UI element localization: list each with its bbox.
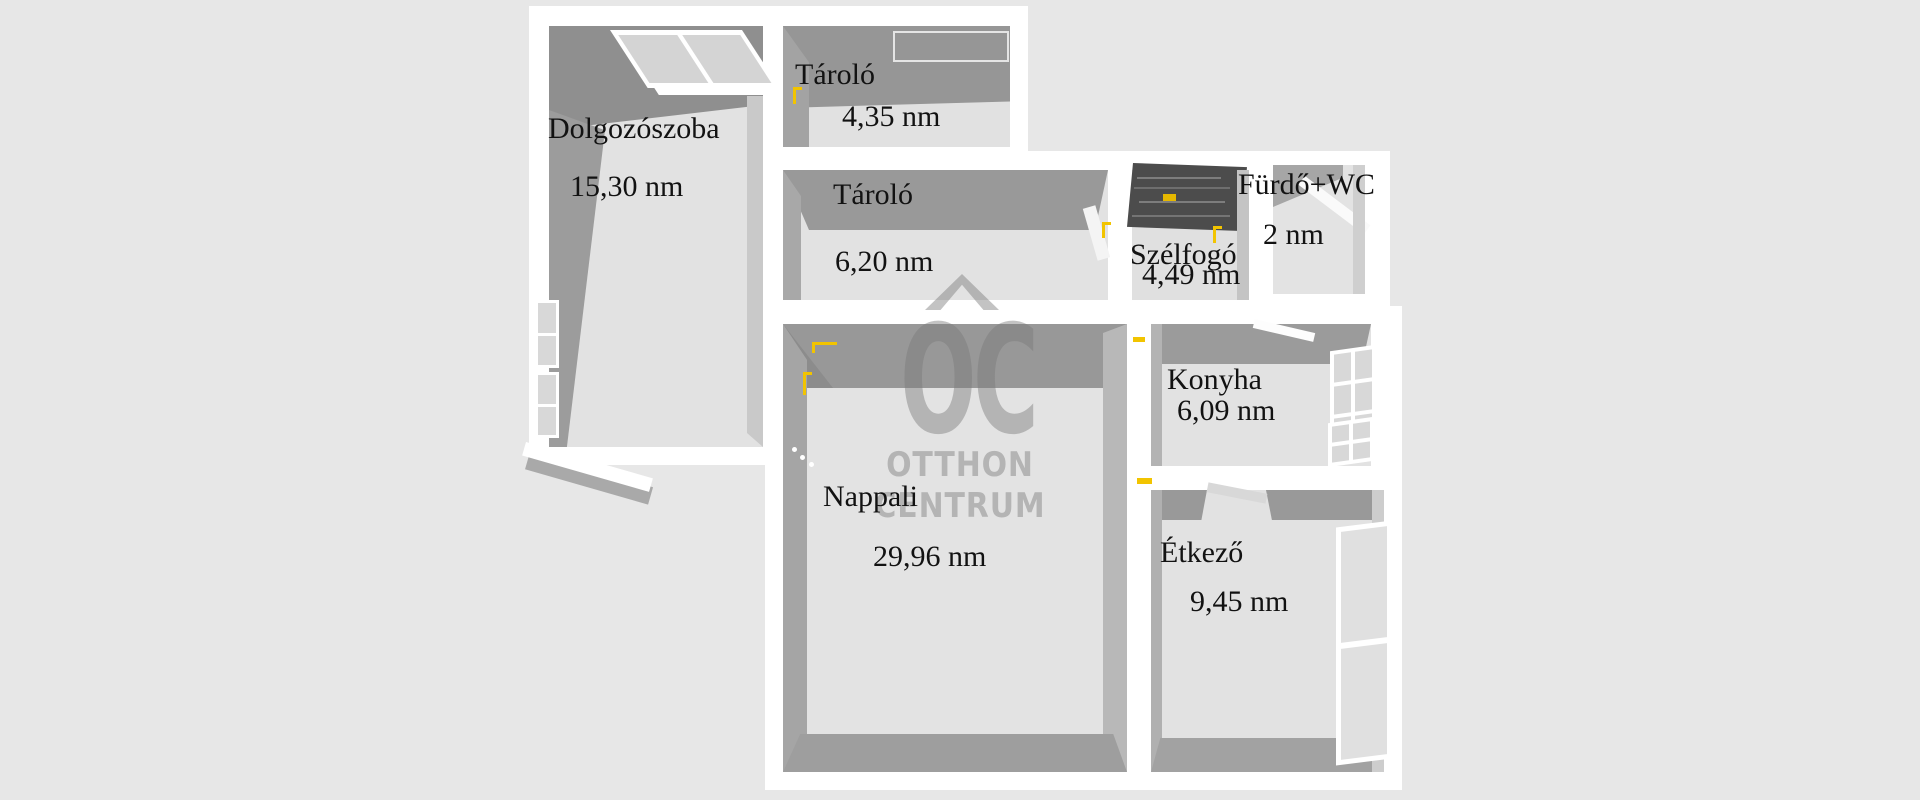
watermark-logo: OC	[900, 306, 1020, 456]
room-label-szelfogo-area: 4,49 nm	[1142, 258, 1240, 292]
door-handle-marker	[812, 342, 837, 353]
window-pane	[1353, 441, 1370, 459]
stair-step-line	[1139, 201, 1225, 203]
room-label-etkezo-area: 9,45 nm	[1190, 585, 1288, 619]
window-pane	[1353, 421, 1370, 439]
door-handle-marker	[803, 372, 812, 395]
window-pane	[1355, 381, 1372, 411]
room-label-furdo-area: 2 nm	[1263, 218, 1324, 252]
room-label-tarolo2-name: Tároló	[833, 178, 913, 212]
window-pane	[1334, 384, 1351, 414]
stair-step-line	[1134, 187, 1230, 189]
stairs	[1127, 163, 1247, 231]
door-handle-marker	[1137, 478, 1152, 484]
door-hinge-dot	[792, 447, 797, 452]
room-label-dolgozoszoba-name: Dolgozószoba	[548, 112, 720, 146]
floorplan-canvas: OC OTTHON CENTRUM Dolgozószoba 15,30 nm …	[0, 0, 1920, 800]
room-label-konyha-name: Konyha	[1167, 363, 1262, 397]
room-label-tarolo1-name: Tároló	[795, 58, 875, 92]
window-pane	[538, 336, 556, 366]
door-hinge-dot	[809, 462, 814, 467]
door-handle-marker	[1102, 222, 1111, 238]
wall-face-bottom	[783, 734, 1127, 772]
window-pane	[538, 407, 556, 436]
room-label-furdo-name: Fürdő+WC	[1238, 168, 1375, 202]
wall-face-left	[1151, 490, 1162, 772]
door-handle-marker	[1133, 337, 1145, 342]
window-pane	[1341, 526, 1387, 643]
window-pane	[1355, 349, 1372, 379]
room-label-tarolo2-area: 6,20 nm	[835, 245, 933, 279]
wall-face-left	[1151, 324, 1162, 466]
stair-step-line	[1132, 215, 1230, 217]
window-left-2	[535, 372, 559, 438]
window-pane	[538, 375, 556, 404]
watermark-line1: OTTHON	[872, 448, 1048, 482]
wall-face-top	[1266, 490, 1384, 520]
wall-face-right	[1103, 324, 1127, 772]
room-label-nappali-name: Nappali	[823, 480, 918, 514]
wall-face-right	[747, 96, 763, 447]
window-pane	[538, 303, 556, 333]
door-hinge-dot	[800, 455, 805, 460]
window-pane	[1334, 352, 1351, 382]
builtin-cabinet-outline	[893, 31, 1009, 62]
room-label-tarolo1-area: 4,35 nm	[842, 100, 940, 134]
stairs-accent-dot	[1163, 194, 1176, 201]
room-label-konyha-area: 6,09 nm	[1177, 394, 1275, 428]
window-pane	[1341, 643, 1387, 760]
wall-face-top	[783, 170, 1108, 230]
room-label-nappali-area: 29,96 nm	[873, 540, 986, 574]
window-pane	[1332, 444, 1349, 462]
stair-step-line	[1137, 177, 1221, 179]
window-left-1	[535, 300, 559, 368]
window-pane	[1332, 424, 1349, 442]
skylight-sill	[653, 86, 781, 95]
window-konyha-lower	[1328, 417, 1374, 467]
window-etkezo	[1336, 521, 1392, 766]
room-label-etkezo-name: Étkező	[1160, 536, 1243, 570]
room-label-dolgozoszoba-area: 15,30 nm	[570, 170, 683, 204]
